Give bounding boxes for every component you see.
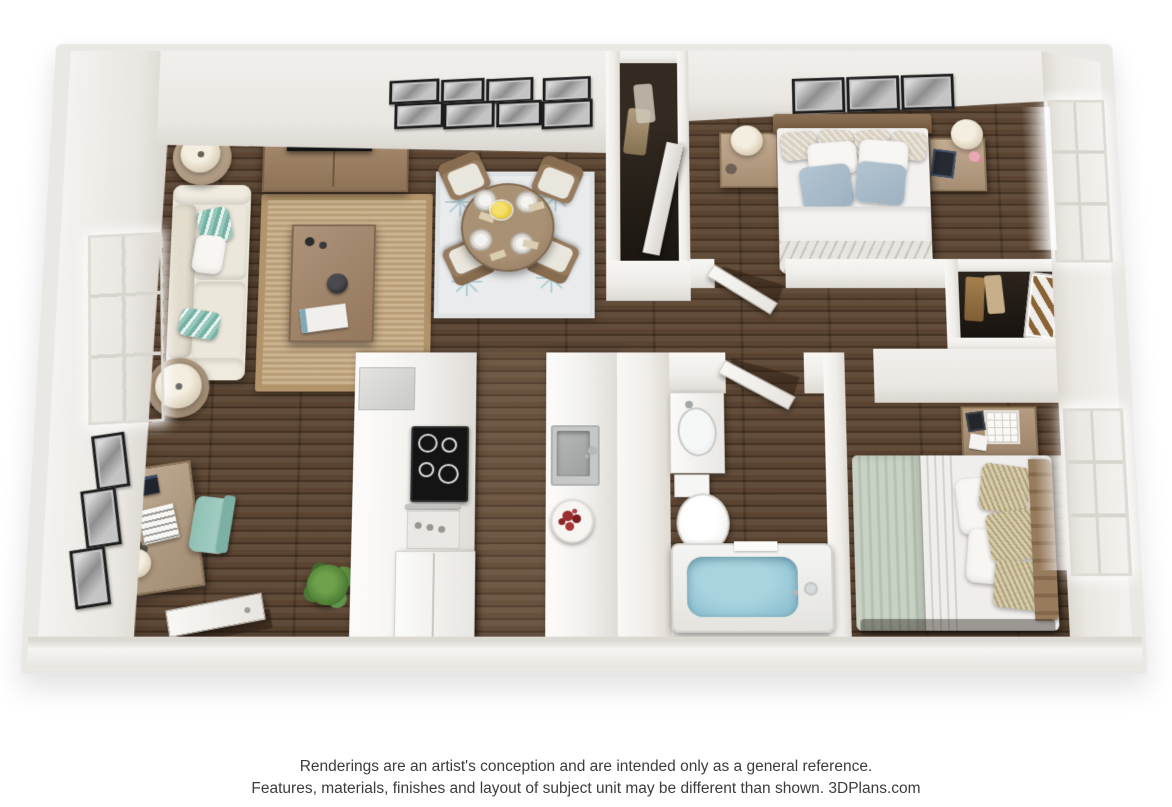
disclaimer: Renderings are an artist's conception an…: [0, 756, 1172, 800]
gallery-frame: [394, 101, 444, 129]
nightstand-tablet: [931, 149, 957, 178]
bed1-blue-pillow: [854, 160, 907, 206]
dishwasher: [358, 367, 415, 410]
bedroom2-window: [1063, 408, 1133, 576]
bottom-wall: [27, 637, 1144, 669]
gallery-frame: [389, 79, 439, 105]
nightstand-flowers: [969, 151, 981, 162]
tub-faucet: [804, 582, 818, 596]
oven-handle: [405, 504, 460, 509]
bedroom1-wall-frame: [846, 75, 900, 112]
desk-wall-frame: [80, 486, 122, 549]
place-setting-plate: [469, 229, 492, 251]
floor-plan-page: Renderings are an artist's conception an…: [0, 0, 1172, 807]
hall-closet-top-wall: [620, 51, 677, 63]
burner: [441, 437, 457, 452]
disclaimer-line-1: Renderings are an artist's conception an…: [0, 756, 1172, 778]
bedroom1-bottom-wall: [785, 259, 945, 288]
gallery-frame: [441, 78, 485, 104]
sofa-armrest-top: [173, 185, 252, 205]
kitchen-floor-light: [473, 352, 546, 640]
flower-centerpiece: [491, 201, 512, 219]
fruit-bowl: [550, 499, 593, 543]
bedroom1-lamp-right: [950, 119, 983, 149]
gallery-frame: [443, 100, 494, 129]
oven-front: [406, 511, 460, 549]
desk-wall-frame: [91, 432, 130, 491]
bed1-blue-pillow: [798, 163, 855, 212]
nightstand-paper: [969, 433, 989, 451]
tub-towel: [734, 541, 778, 551]
bedroom2-wall-top: [873, 349, 1060, 403]
nightstand-photo: [965, 411, 986, 432]
bathtub-water: [687, 557, 799, 617]
tr-closet-clothes: [964, 277, 985, 322]
desk-wall-frame: [69, 546, 111, 610]
bathroom-faucet: [685, 401, 693, 408]
bathroom-left-wall: [617, 352, 672, 643]
bedroom1-wall-frame: [901, 74, 955, 111]
bedroom1-wall-frame: [792, 77, 846, 114]
fruit-berries: [562, 511, 573, 522]
kitchen-right-run: [545, 352, 618, 643]
gallery-frame: [542, 99, 593, 130]
lattice-cube: [984, 410, 1021, 444]
gallery-frame: [496, 100, 541, 128]
floor-plan-3d: [36, 51, 1136, 680]
bed2-foot-shadow: [860, 619, 1056, 635]
bed2-pattern-pillow: [978, 462, 1032, 516]
disclaimer-line-2: Features, materials, finishes and layout…: [0, 778, 1172, 800]
bedroom1-lamp-left: [730, 125, 763, 155]
bed2-sage-blanket: [852, 455, 926, 630]
hall-closet-bottom-wall: [606, 261, 691, 301]
kitchen-faucet: [588, 446, 598, 455]
bedroom1-window: [1047, 100, 1112, 263]
nightstand-dish: [725, 164, 737, 175]
hanging-clothes: [633, 83, 656, 123]
living-window: [88, 232, 165, 425]
bed2-sheet-fold: [918, 455, 958, 630]
kitchen-sink-basin: [557, 431, 590, 476]
